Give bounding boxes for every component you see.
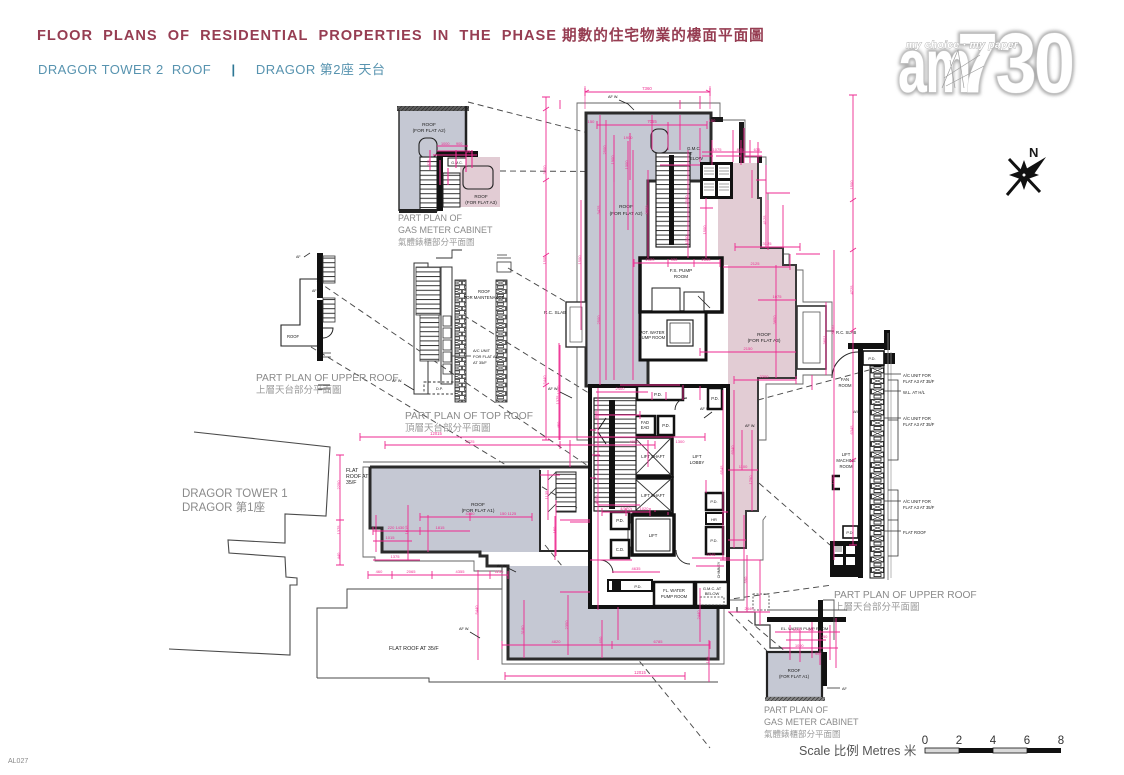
svg-text:ROOM: ROOM [674,274,688,279]
svg-text:2125: 2125 [751,261,761,266]
svg-text:440: 440 [336,552,341,559]
svg-text:A/C UNIT FOR: A/C UNIT FOR [903,416,931,421]
svg-text:HR: HR [711,517,717,522]
svg-text:PART PLAN OF UPPER ROOF: PART PLAN OF UPPER ROOF [834,590,977,601]
svg-text:EAD: EAD [641,425,650,430]
svg-text:8725: 8725 [466,439,476,444]
svg-text:ROOF: ROOF [619,204,633,210]
svg-text:3180: 3180 [520,625,525,635]
svg-text:P.D.: P.D. [868,356,875,361]
svg-text:3125: 3125 [763,241,773,246]
svg-text:ROOM: ROOM [839,464,853,469]
svg-text:1075: 1075 [713,147,723,152]
svg-text:150: 150 [821,635,827,639]
svg-text:2065: 2065 [407,569,417,574]
svg-text:G.M.C.: G.M.C. [451,161,462,165]
svg-text:PART PLAN OF: PART PLAN OF [764,705,829,715]
svg-text:730: 730 [957,16,1072,110]
svg-text:1020: 1020 [640,506,650,511]
svg-text:P.D.: P.D. [634,584,641,589]
svg-text:AL027: AL027 [8,758,28,765]
svg-text:12015: 12015 [430,431,442,436]
svg-text:D.P.: D.P. [436,387,443,391]
svg-text:1500: 1500 [577,255,582,265]
svg-text:P.D.: P.D. [846,530,853,535]
svg-text:1100: 1100 [739,464,748,469]
svg-text:P.D.: P.D. [662,423,670,428]
svg-text:460: 460 [376,569,383,574]
svg-text:3850: 3850 [830,325,835,335]
svg-text:6545: 6545 [719,465,724,475]
svg-text:頂層天台部分平面圖: 頂層天台部分平面圖 [405,422,491,434]
svg-text:3425: 3425 [596,205,601,215]
svg-text:AF: AF [296,255,301,259]
svg-text:900: 900 [815,652,821,656]
svg-text:CHIMNEY: CHIMNEY [717,561,721,578]
svg-text:4650: 4650 [594,495,599,505]
svg-text:635: 635 [754,147,761,152]
svg-text:1000: 1000 [684,235,689,245]
svg-text:P.D.: P.D. [710,538,717,543]
svg-text:3601: 3601 [822,335,827,345]
svg-text:BELOW: BELOW [705,591,720,596]
svg-text:2345: 2345 [707,552,717,557]
svg-text:150 1125: 150 1125 [500,511,517,516]
svg-text:R.C. SLAB: R.C. SLAB [544,310,566,315]
svg-text:2250: 2250 [336,480,341,490]
svg-text:上層天台部分平面圖: 上層天台部分平面圖 [256,384,342,396]
svg-text:1150: 1150 [495,569,504,574]
svg-text:1900: 1900 [610,155,615,165]
svg-text:FL. WATER: FL. WATER [663,588,685,593]
svg-text:氣體錶櫃部分平面圖: 氣體錶櫃部分平面圖 [764,729,841,739]
svg-text:35/F: 35/F [346,480,356,486]
svg-text:AF: AF [842,687,848,691]
svg-text:4(170): 4(170) [620,506,632,511]
svg-text:2350: 2350 [564,620,569,630]
svg-text:A/C UNIT FOR: A/C UNIT FOR [903,373,931,378]
svg-text:930: 930 [671,257,678,262]
svg-text:2200: 2200 [760,374,770,379]
svg-text:AF W.: AF W. [497,564,507,568]
svg-text:1500: 1500 [702,225,707,235]
svg-text:W.L. AT H/L: W.L. AT H/L [903,390,926,395]
svg-text:3300: 3300 [542,165,547,175]
svg-text:7360: 7360 [642,86,652,91]
svg-text:(FOR FLAT A3): (FOR FLAT A3) [465,200,497,205]
svg-text:1750: 1750 [830,475,835,485]
svg-text:ROOF: ROOF [757,332,771,338]
svg-text:DRAGOR TOWER 1: DRAGOR TOWER 1 [182,488,288,500]
svg-text:4725: 4725 [849,285,854,295]
svg-text:845: 845 [737,147,744,152]
svg-text:LIFT SHAFT: LIFT SHAFT [641,454,665,459]
svg-text:上層天台部分平面圖: 上層天台部分平面圖 [834,601,920,613]
svg-text:AF W.: AF W. [459,627,469,631]
svg-text:P.D.: P.D. [711,396,719,401]
svg-text:N: N [1029,145,1038,160]
svg-text:EL. WATER PUMP ROOM: EL. WATER PUMP ROOM [781,626,828,631]
svg-text:1500: 1500 [849,180,854,190]
svg-text:650: 650 [598,636,603,643]
svg-text:AT 35/F: AT 35/F [473,360,487,365]
svg-text:ROOF: ROOF [474,194,487,199]
svg-text:FLAT A3 AT 35/F: FLAT A3 AT 35/F [903,379,935,384]
svg-text:AF W.: AF W. [745,424,755,428]
svg-text:450: 450 [808,628,814,632]
svg-text:AF W.: AF W. [608,95,618,99]
svg-text:LIFT SHAFT: LIFT SHAFT [641,493,665,498]
svg-text:W.L.: W.L. [853,410,861,414]
svg-text:6040: 6040 [730,445,735,455]
svg-text:1375: 1375 [336,525,341,535]
svg-text:1815: 1815 [436,525,446,530]
svg-text:my choice · my paper: my choice · my paper [906,40,1019,51]
svg-text:FLAT ROOF: FLAT ROOF [903,530,927,535]
svg-text:150: 150 [588,119,595,124]
svg-text:ROOF: ROOF [287,334,300,339]
svg-text:LIFT: LIFT [692,454,701,459]
svg-text:450: 450 [556,421,561,428]
svg-text:6: 6 [1024,735,1030,747]
svg-text:AF W.: AF W. [700,407,710,411]
svg-text:PUMP ROOM: PUMP ROOM [639,335,666,340]
svg-text:1375: 1375 [391,554,401,559]
svg-text:FLAT A3 AT 35/F: FLAT A3 AT 35/F [903,505,935,510]
svg-text:ROOM: ROOM [838,383,852,388]
svg-text:AF: AF [312,289,317,293]
svg-text:GAS METER CABINET: GAS METER CABINET [398,225,493,235]
svg-text:2440: 2440 [696,610,701,620]
svg-text:PART PLAN OF UPPER ROOF: PART PLAN OF UPPER ROOF [256,373,399,384]
svg-text:2440: 2440 [745,606,755,611]
svg-text:1900: 1900 [624,135,634,140]
svg-text:4350: 4350 [466,511,476,516]
svg-text:ROOF: ROOF [478,289,491,294]
svg-text:2500: 2500 [684,195,689,205]
svg-text:ROOF: ROOF [788,668,801,673]
svg-text:FOR FLAT A1: FOR FLAT A1 [473,354,499,359]
svg-text:1790: 1790 [748,475,753,485]
svg-text:DRAGOR 第1座: DRAGOR 第1座 [182,500,265,514]
svg-text:P.D.: P.D. [710,499,717,504]
svg-text:150: 150 [552,526,557,533]
svg-text:7055: 7055 [647,119,657,124]
svg-text:LIFT: LIFT [649,533,658,538]
svg-text:150: 150 [466,150,472,154]
svg-text:A/C UNIT FOR: A/C UNIT FOR [903,499,931,504]
svg-text:4635: 4635 [632,566,642,571]
svg-text:2150: 2150 [744,346,754,351]
svg-text:3850: 3850 [772,315,777,325]
svg-text:1375: 1375 [555,395,560,405]
svg-text:600: 600 [793,628,799,632]
svg-text:2020: 2020 [646,257,656,262]
svg-text:AF W.: AF W. [392,379,402,383]
svg-text:3600: 3600 [644,205,649,215]
svg-text:1075: 1075 [773,294,783,299]
svg-text:AF W.: AF W. [548,387,558,391]
svg-text:2500: 2500 [602,145,607,155]
svg-text:2: 2 [956,735,962,747]
svg-text:PART PLAN OF TOP ROOF: PART PLAN OF TOP ROOF [405,411,533,422]
svg-text:PUMP ROOM: PUMP ROOM [661,594,688,599]
svg-text:325: 325 [427,160,431,166]
svg-text:0: 0 [922,735,928,747]
svg-text:12015: 12015 [634,670,646,675]
svg-text:P.D.: P.D. [616,518,624,523]
svg-text:氣體錶櫃部分平面圖: 氣體錶櫃部分平面圖 [398,237,475,247]
svg-text:(FOR FLAT A2): (FOR FLAT A2) [610,211,643,217]
svg-text:2635: 2635 [702,257,712,262]
svg-text:(FOR FLAT A2): (FOR FLAT A2) [413,128,446,134]
svg-text:FLAT ROOF AT 35/F: FLAT ROOF AT 35/F [389,646,439,652]
svg-text:FAN: FAN [841,377,849,382]
svg-text:LOBBY: LOBBY [690,460,705,465]
svg-text:1135: 1135 [544,490,549,499]
svg-text:5440: 5440 [474,605,479,615]
svg-text:FOR MAINTENANCE: FOR MAINTENANCE [464,295,505,300]
svg-text:ROOF: ROOF [422,122,436,128]
svg-text:8: 8 [1058,735,1064,747]
svg-text:Scale 比例 Metres 米: Scale 比例 Metres 米 [799,744,917,758]
svg-text:590: 590 [743,576,748,583]
svg-text:LIFT: LIFT [842,452,851,457]
svg-text:PART PLAN OF: PART PLAN OF [398,213,463,223]
svg-text:P.D.: P.D. [654,392,662,397]
svg-text:GAS METER CABINET: GAS METER CABINET [764,717,859,727]
svg-text:5440: 5440 [542,375,547,385]
svg-text:1015: 1015 [386,535,396,540]
svg-text:1000: 1000 [795,644,803,648]
svg-text:150: 150 [709,118,716,123]
svg-text:6785: 6785 [654,639,664,644]
svg-text:4: 4 [990,735,997,747]
svg-text:ROOF: ROOF [471,502,485,508]
svg-text:6345: 6345 [849,425,854,435]
svg-text:2500: 2500 [596,315,601,325]
svg-text:4355: 4355 [456,569,466,574]
svg-text:1000: 1000 [624,160,629,170]
svg-text:4125: 4125 [762,215,767,225]
svg-text:A/C UNIT: A/C UNIT [473,348,491,353]
svg-text:2400: 2400 [616,386,626,391]
svg-text:F.S. PUMP: F.S. PUMP [670,268,692,273]
svg-text:150: 150 [705,656,710,663]
svg-text:220 1430: 220 1430 [388,525,405,530]
svg-text:1300: 1300 [676,439,686,444]
svg-text:1615: 1615 [404,525,409,535]
svg-text:4000: 4000 [630,439,640,444]
svg-text:900: 900 [456,142,462,146]
svg-text:1000: 1000 [441,142,449,146]
svg-text:4820: 4820 [552,639,562,644]
svg-text:1500: 1500 [542,255,547,265]
svg-text:(FOR FLAT A1): (FOR FLAT A1) [779,674,810,679]
svg-text:C.D.: C.D. [616,547,624,552]
svg-text:FLAT A3 AT 35/F: FLAT A3 AT 35/F [903,422,935,427]
